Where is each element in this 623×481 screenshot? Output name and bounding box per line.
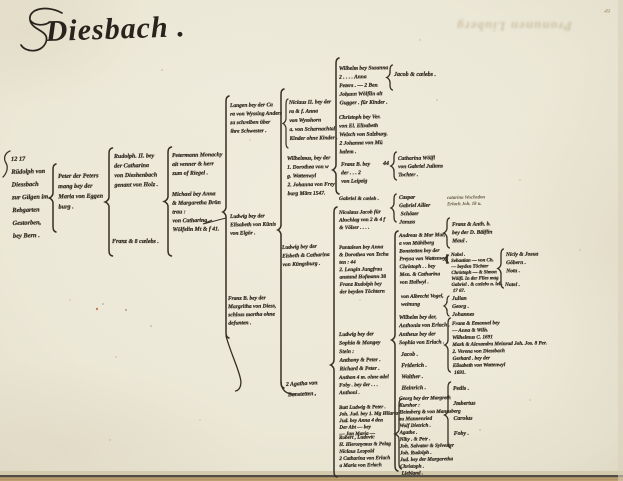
svg-text:44: 44 bbox=[382, 161, 389, 167]
svg-text:49: 49 bbox=[604, 8, 610, 15]
svg-text:Franz & 8 cælebs .: Franz & 8 cælebs . bbox=[112, 239, 159, 245]
svg-text:Natel .: Natel . bbox=[504, 282, 520, 288]
svg-text:Pronunen Liuberg: Pronunen Liuberg bbox=[456, 19, 572, 34]
svg-text:Gabriel & cæleb .: Gabriel & cæleb . bbox=[339, 196, 379, 202]
svg-text:Diesbach .: Diesbach . bbox=[44, 10, 186, 48]
svg-text:Jacob & cælebs .: Jacob & cælebs . bbox=[393, 72, 436, 78]
svg-text:catarina WochsdonErlach Joh. 1: catarina WochsdonErlach Joh. 18 u. bbox=[446, 195, 486, 207]
